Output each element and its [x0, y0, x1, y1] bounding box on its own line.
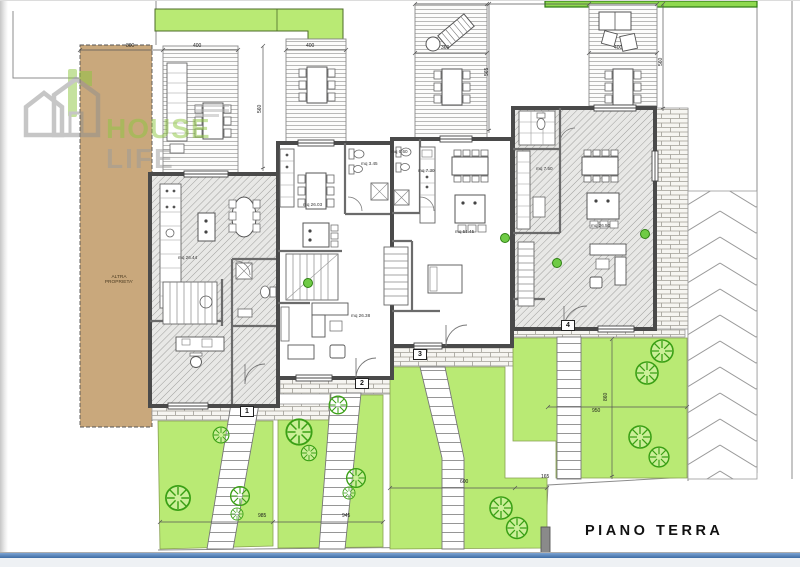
page-title: PIANO TERRA [585, 524, 723, 539]
deck3-dining-table [434, 69, 470, 105]
house-life-watermark: HOUSE LIFE [18, 57, 248, 141]
unit2-kitchen [280, 149, 294, 207]
unit2-stairs [286, 254, 338, 300]
unit-1 [150, 171, 278, 409]
dimension-label: 400 [614, 46, 622, 51]
room-area-label: mq 3.45 [361, 162, 378, 167]
unit4-dining-table [582, 150, 618, 182]
unit1-island [198, 213, 215, 241]
tree-icon [213, 427, 229, 443]
unit-2 [278, 140, 392, 381]
tree-icon [343, 487, 355, 499]
side-terrace-unit-4 [656, 108, 688, 329]
walkway-unit-4 [557, 337, 581, 479]
terrace-unit-3 [390, 346, 517, 366]
tree-icon [507, 518, 528, 539]
unit4-utility [519, 111, 555, 145]
room-area-label: mq 26.50 [591, 224, 610, 229]
tree-icon [301, 445, 316, 460]
deck4-dining-table [605, 69, 641, 105]
unit3-dining-table [452, 150, 488, 182]
room-area-label: mq 26.44 [178, 256, 197, 261]
dimension-label: 945 [342, 514, 350, 519]
logo-tagline-line [195, 114, 219, 117]
dimension-label: 560 [659, 58, 664, 66]
unit4-stairs [518, 242, 534, 306]
room-area-label: mq 26.03 [303, 203, 322, 208]
plant-icon [553, 259, 562, 268]
house-life-logo-icon [20, 61, 120, 141]
dimension-label: 560 [258, 105, 263, 113]
unit-1-badge: 1 [240, 406, 254, 417]
tree-icon [629, 426, 651, 448]
tree-icon [286, 419, 311, 444]
tree-icon [651, 340, 673, 362]
unit-3 [384, 136, 512, 349]
tree-icon [166, 486, 190, 510]
tree-icon [231, 487, 250, 506]
unit3-stairs [384, 247, 408, 305]
deck3-round-table [426, 37, 440, 51]
dimension-label: 360 [441, 46, 449, 51]
room-area-label: mq 26.38 [351, 314, 370, 319]
tree-icon [329, 396, 347, 414]
floorplan-page: HOUSE LIFE ALTRAPROPRIETA' 1 2 3 4 mq 26… [0, 0, 800, 567]
plant-icon [641, 230, 650, 239]
unit2-island [303, 223, 338, 247]
tree-icon [347, 469, 366, 488]
dimension-label: 565 [485, 68, 490, 76]
unit1-stairs [163, 282, 217, 324]
unit-4-badge: 4 [561, 320, 575, 331]
dimension-label: 800 [126, 44, 134, 49]
tree-icon [636, 362, 658, 384]
deck2-dining-table [299, 67, 335, 103]
plant-icon [501, 234, 510, 243]
unit3-island [455, 195, 486, 232]
tree-icon [649, 447, 669, 467]
dimension-label: 860 [604, 393, 609, 401]
unit3-daybed [428, 265, 462, 293]
dimension-label: 400 [306, 44, 314, 49]
neighbor-property-label: ALTRAPROPRIETA' [92, 275, 146, 285]
room-area-label: mq 7.50 [536, 167, 553, 172]
tree-icon [231, 508, 243, 520]
room-area-label: mq 51.45 [455, 230, 474, 235]
dimension-label: 985 [258, 514, 266, 519]
logo-word-life: LIFE [106, 144, 175, 173]
unit1-dining-table [229, 197, 260, 237]
unit-3-badge: 3 [413, 349, 427, 360]
dimension-label: 400 [193, 44, 201, 49]
room-area-label: mq 6.60 [391, 150, 408, 155]
unit-4 [513, 105, 658, 332]
unit-2-badge: 2 [355, 378, 369, 389]
tree-icon [490, 497, 512, 519]
logo-tagline-line [195, 104, 229, 107]
dimension-label: 950 [592, 409, 600, 414]
dimension-label: 600 [460, 480, 468, 485]
logo-tagline-line [195, 109, 229, 112]
dimension-label: 165 [541, 475, 549, 480]
plant-icon [304, 279, 313, 288]
ramp-chevron-band [688, 191, 757, 479]
logo-word-house: HOUSE [106, 114, 211, 143]
unit3-kitchen [420, 147, 435, 223]
room-area-label: mq 7.30 [418, 169, 435, 174]
